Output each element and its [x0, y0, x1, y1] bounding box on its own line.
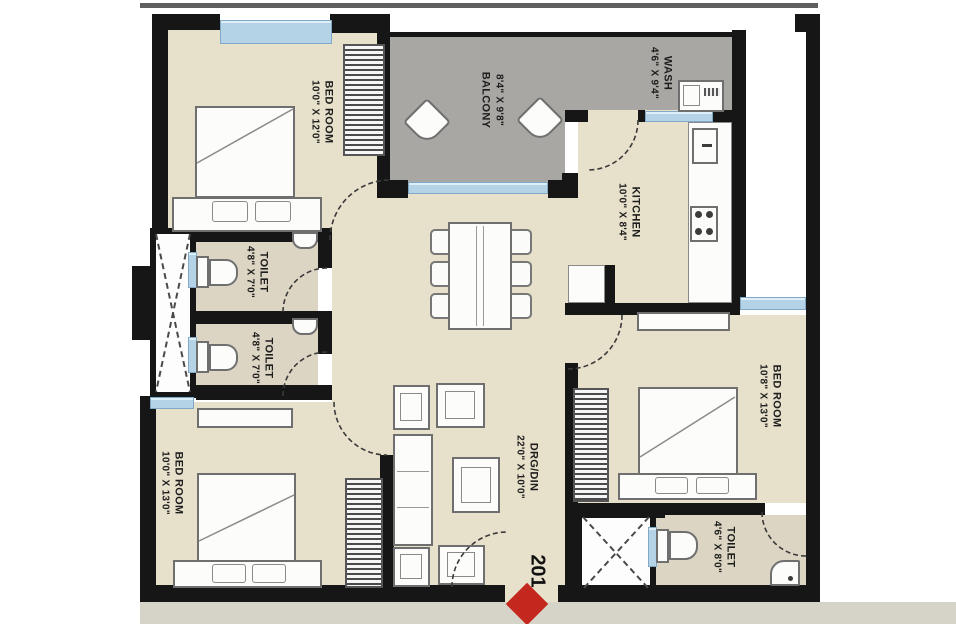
kitchen-counter-corner [568, 265, 605, 303]
room-name: DRG/DIN [526, 435, 540, 499]
room-label-bedroom-right: BED ROOM 10'8" X 13'0" [756, 364, 783, 428]
bed-headboard [173, 560, 322, 588]
washing-machine-panel [704, 88, 720, 96]
bed [195, 106, 295, 198]
kitchen-sink [692, 128, 718, 164]
wardrobe [573, 388, 609, 502]
wc-tank [196, 341, 209, 373]
wall [806, 28, 820, 602]
shaft-border [576, 590, 656, 596]
cushion [447, 552, 475, 577]
washing-machine-door [683, 85, 700, 106]
sofa-line [397, 471, 429, 472]
pillow [252, 564, 286, 583]
bed [197, 473, 296, 564]
room-name: BED ROOM [769, 364, 783, 428]
washing-machine [678, 80, 724, 112]
room-dims: 10'0" X 13'0" [158, 451, 171, 515]
wall [795, 14, 820, 32]
wc-tank [656, 529, 669, 563]
wall [140, 396, 156, 602]
room-dims: 4'8" X 7'0" [243, 246, 256, 298]
floor-plan: BED ROOM 10'0" X 12'0" 8'4" X 9'8" BALCO… [0, 0, 956, 624]
wall [655, 503, 765, 515]
unit-number: 201 [526, 554, 549, 587]
wardrobe [345, 478, 383, 588]
room-label-toilet-upper: TOILET 4'8" X 7'0" [243, 246, 270, 298]
stove [690, 206, 718, 242]
window [740, 297, 806, 310]
dining-table [448, 222, 512, 330]
wardrobe [343, 44, 385, 156]
pillow [255, 201, 291, 222]
armchair [393, 547, 430, 587]
room-label-wash: WASH 4'6" X 9'4" [647, 47, 674, 99]
wall [196, 385, 332, 400]
washbasin [292, 318, 318, 335]
wall [318, 311, 332, 354]
cushion [400, 393, 422, 421]
wall [638, 110, 645, 122]
armchair [438, 545, 485, 585]
room-name: TOILET [723, 521, 737, 573]
armchair [393, 385, 430, 430]
room-name: BALCONY [478, 72, 492, 129]
room-dims: 4'6" X 9'4" [647, 47, 660, 99]
dresser [197, 408, 293, 428]
wall [377, 180, 408, 198]
room-name: WASH [660, 47, 674, 99]
window [645, 111, 713, 122]
burner [706, 228, 713, 235]
sofa-line [397, 507, 429, 508]
room-name: TOILET [256, 246, 270, 298]
room-name: KITCHEN [628, 183, 642, 241]
room-label-kitchen: KITCHEN 10'0" X 8'4" [615, 183, 642, 241]
washbasin [292, 232, 318, 249]
floor-shaft-left [156, 234, 190, 392]
room-label-bedroom-top-left: BED ROOM 10'0" X 12'0" [308, 80, 335, 144]
wall [605, 265, 615, 305]
faucet [702, 144, 712, 147]
wall [152, 14, 168, 230]
bed [638, 387, 738, 475]
room-label-drawing-dining: DRG/DIN 22'0" X 10'0" [513, 435, 540, 499]
coffee-table [452, 457, 500, 513]
window [150, 397, 194, 409]
room-label-toilet-bottom-right: TOILET 4'6" X 8'0" [710, 521, 737, 573]
room-dims: 10'0" X 12'0" [308, 80, 321, 144]
window [408, 182, 548, 194]
top-rule [140, 3, 818, 8]
corner-washbasin [770, 560, 800, 586]
basin-drain [788, 576, 793, 581]
cushion [445, 391, 475, 419]
room-dims: 8'4" X 9'8" [493, 72, 506, 129]
wall [318, 228, 332, 268]
footer-band [140, 602, 956, 624]
burner [706, 211, 713, 218]
wc-bowl [209, 259, 238, 286]
wall [732, 30, 746, 303]
room-dims: 4'8" X 7'0" [248, 332, 261, 384]
dresser [637, 312, 730, 331]
wall [132, 266, 152, 340]
room-dims: 22'0" X 10'0" [513, 435, 526, 499]
pillow [212, 564, 246, 583]
burner [695, 211, 702, 218]
room-label-toilet-lower: TOILET 4'8" X 7'0" [248, 332, 275, 384]
armchair [436, 383, 485, 428]
room-dims: 10'8" X 13'0" [756, 364, 769, 428]
table-top [461, 467, 491, 503]
sofa [393, 434, 433, 546]
room-dims: 10'0" X 8'4" [615, 183, 628, 241]
room-name: BED ROOM [321, 80, 335, 144]
pillow [696, 477, 729, 494]
wc-bowl [669, 531, 698, 560]
balcony-rail [385, 32, 738, 37]
pillow [212, 201, 248, 222]
shaft-border [576, 510, 582, 596]
shaft-border [150, 228, 156, 398]
shaft-border [576, 510, 656, 516]
cushion [400, 554, 422, 579]
room-label-bedroom-bottom-left: BED ROOM 10'0" X 13'0" [158, 451, 185, 515]
wall [562, 173, 578, 198]
pillow [655, 477, 688, 494]
room-name: BED ROOM [171, 451, 185, 515]
wall [565, 110, 588, 122]
room-name: TOILET [261, 332, 275, 384]
floor-shaft-bottom-right [582, 516, 650, 590]
wall [152, 14, 220, 30]
wc-bowl [209, 344, 238, 371]
table-line [483, 226, 484, 326]
window [220, 20, 332, 44]
table-line [476, 226, 477, 326]
burner [695, 228, 702, 235]
room-dims: 4'6" X 8'0" [710, 521, 723, 573]
room-label-balcony: 8'4" X 9'8" BALCONY [478, 72, 505, 129]
wc-tank [196, 256, 209, 288]
